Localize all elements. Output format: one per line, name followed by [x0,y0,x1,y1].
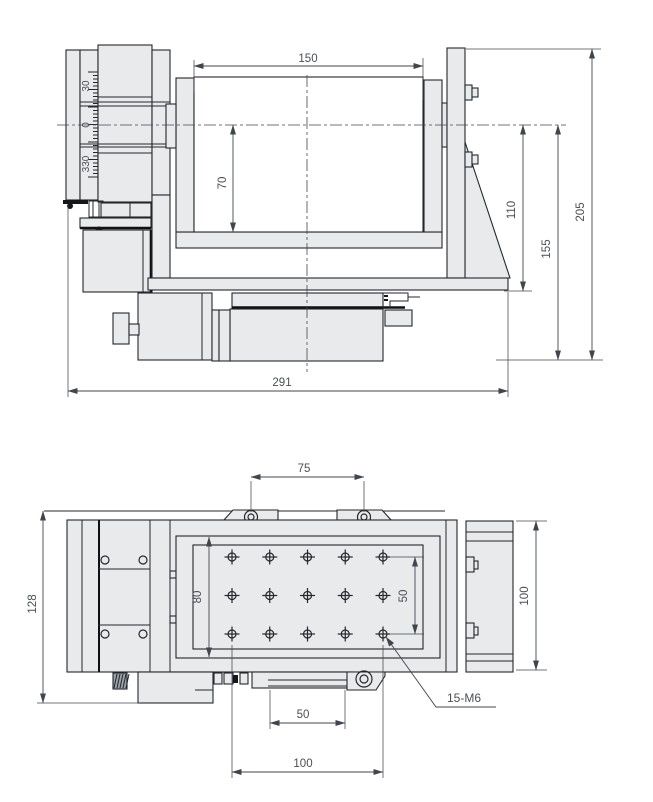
dim-205: 205 [466,49,603,360]
front-protrusions [113,671,385,703]
dim-label-50-cols: 50 [297,709,310,721]
drawing-sheet: 30 0 330 [0,0,653,802]
dim-label-50-rows: 50 [398,590,410,603]
dim-155: 155 [541,125,558,360]
plan-view: 75 128 80 50 100 50 [27,463,547,778]
dim-label-155: 155 [541,239,553,258]
technical-drawing: 30 0 330 [0,0,653,802]
adjust-knob [113,313,129,344]
dim-50-cols: 50 [270,690,345,729]
right-bracket [466,521,513,672]
base-plate [148,278,508,290]
dim-label-205: 205 [575,202,587,221]
lower-slide [113,293,420,361]
scale-label-330: 330 [81,155,92,172]
dim-75: 75 [251,463,364,512]
dim-label-100-body: 100 [519,586,531,605]
u-bracket [166,77,447,248]
front-view: 30 0 330 [57,45,603,397]
dim-label-80: 80 [192,591,204,604]
clamp-detail [63,200,151,234]
right-column [447,48,510,278]
dim-label-110: 110 [506,201,518,219]
dim-100-body: 100 [516,521,547,670]
rotary-platform [194,77,423,232]
micrometer-head: 30 0 330 [66,45,170,202]
thread-callout-label: 15-M6 [447,691,481,705]
dim-label-70: 70 [217,177,229,190]
dim-label-150: 150 [298,53,317,65]
dim-label-291: 291 [272,377,291,389]
dim-label-75: 75 [298,463,311,475]
drive-block [138,293,212,360]
dim-label-128: 128 [27,594,39,613]
dim-label-100-cols: 100 [293,758,312,770]
dim-110: 110 [504,125,532,291]
scale-label-30: 30 [81,80,92,92]
